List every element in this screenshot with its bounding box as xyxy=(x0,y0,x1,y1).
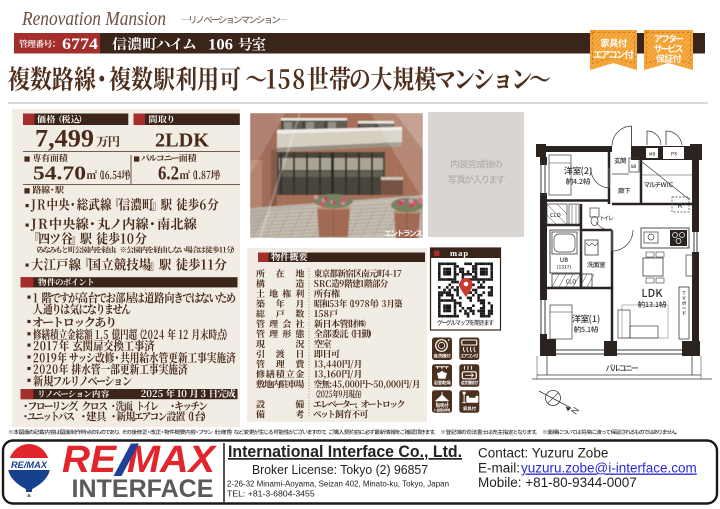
svg-text:2-26-32 Minami-Aoyama, Seizan: 2-26-32 Minami-Aoyama, Seizan 402, Minat… xyxy=(227,479,449,489)
svg-text:RE/MAX: RE/MAX xyxy=(11,460,48,470)
svg-text:E-mail:: E-mail: xyxy=(478,461,520,476)
svg-text:54.70: 54.70 xyxy=(33,163,86,184)
svg-text:Mobile: +81-80-9344-0007: Mobile: +81-80-9344-0007 xyxy=(478,475,637,490)
svg-text:R: R xyxy=(677,203,682,210)
svg-text:Contact: Yuzuru Zobe: Contact: Yuzuru Zobe xyxy=(478,446,608,461)
svg-text:International Interface Co., L: International Interface Co., Ltd. xyxy=(228,442,462,461)
svg-text:N: N xyxy=(569,405,581,416)
svg-text:TEL: +81-3-6804-3455: TEL: +81-3-6804-3455 xyxy=(227,489,315,499)
svg-text:map: map xyxy=(450,248,469,258)
svg-text:Renovation Mansion: Renovation Mansion xyxy=(21,9,166,30)
svg-text:6.2: 6.2 xyxy=(158,163,179,184)
svg-text:2LDK: 2LDK xyxy=(155,130,209,152)
svg-text:6774: 6774 xyxy=(62,36,98,53)
svg-text:Broker License: Tokyo (2) 968: Broker License: Tokyo (2) 96857 xyxy=(252,462,428,477)
svg-text:7,499: 7,499 xyxy=(35,124,94,153)
svg-text:yuzuru.zobe@i-interface.com: yuzuru.zobe@i-interface.com xyxy=(521,461,697,476)
svg-text:INTERFACE: INTERFACE xyxy=(72,475,214,503)
svg-text:106: 106 xyxy=(208,37,233,54)
